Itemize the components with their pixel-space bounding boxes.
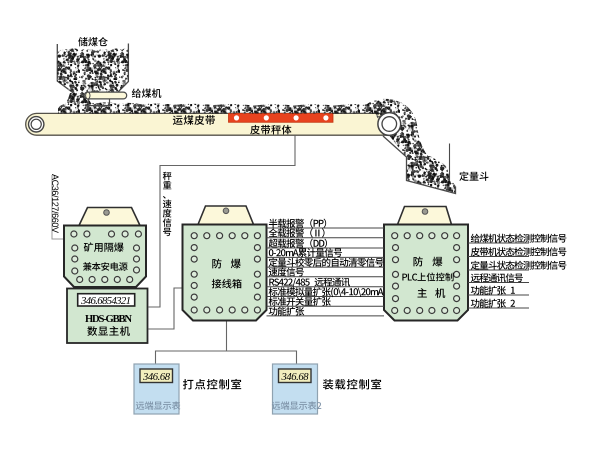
svg-text:HDS-GBBN: HDS-GBBN: [85, 314, 132, 325]
svg-text:346.68: 346.68: [142, 372, 171, 383]
svg-text:AC36/127/660V: AC36/127/660V: [50, 174, 60, 233]
svg-text:346.6854321: 346.6854321: [80, 295, 131, 307]
svg-text:346.68: 346.68: [281, 372, 310, 383]
